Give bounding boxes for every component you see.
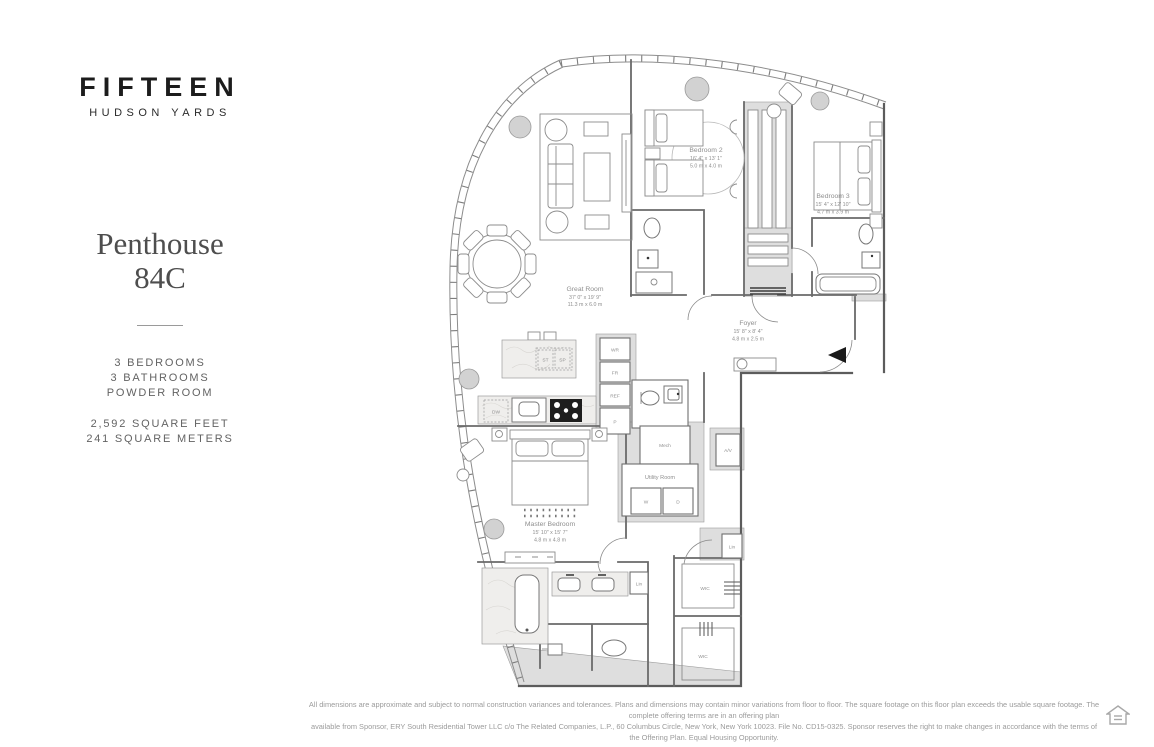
dim-bedroom3-m: 4.7 m x 3.9 m <box>817 210 850 216</box>
label-lin-hall: Lin <box>729 545 736 551</box>
feature-bedrooms: 3 BEDROOMS <box>40 356 280 371</box>
bedroom2-bath <box>636 218 672 293</box>
label-dw: DW <box>492 410 500 416</box>
dim-master-ft: 15' 10" x 15' 7" <box>533 530 568 536</box>
footer-disclaimer: All dimensions are approximate and subje… <box>308 699 1100 743</box>
unit-title-line1: Penthouse <box>40 227 280 261</box>
page: FIFTEEN HUDSON YARDS Penthouse 84C 3 BED… <box>0 0 1154 747</box>
label-wr: WR <box>611 348 620 354</box>
dim-foyer-ft: 15' 8" x 8' 4" <box>733 329 762 335</box>
dim-bedroom3-ft: 15' 4" x 12' 10" <box>816 202 851 208</box>
label-d: D <box>676 500 680 506</box>
brand-logo: FIFTEEN HUDSON YARDS <box>40 72 280 119</box>
label-st: ST <box>542 358 548 364</box>
label-utility: Utility Room <box>645 475 675 481</box>
pantry-column: WR FR REF P <box>600 338 630 434</box>
label-w: W <box>644 500 649 506</box>
sidebar: FIFTEEN HUDSON YARDS Penthouse 84C 3 BED… <box>40 60 280 447</box>
dim-bedroom2-m: 5.0 m x 4.0 m <box>690 164 723 170</box>
entry-arrow <box>828 347 846 363</box>
unit-title-line2: 84C <box>40 261 280 295</box>
master-bath: Lin <box>482 568 648 656</box>
floor-plan: ST SP DW WR FR REF P <box>440 48 900 698</box>
service-rooms: Mech Utility Room W D A/V <box>622 426 740 516</box>
label-wic1: WIC <box>700 586 710 592</box>
area-sqm: 241 SQUARE METERS <box>40 432 280 447</box>
area-list: 2,592 SQUARE FEET 241 SQUARE METERS <box>40 417 280 447</box>
label-great-room: Great Room <box>566 286 603 293</box>
dim-master-m: 4.8 m x 4.8 m <box>534 538 567 544</box>
label-mech: Mech <box>659 443 671 449</box>
label-foyer: Foyer <box>739 320 757 327</box>
label-master-bedroom: Master Bedroom <box>525 521 576 528</box>
unit-title: Penthouse 84C <box>40 227 280 295</box>
bath3-wall <box>852 294 886 301</box>
feature-powder: POWDER ROOM <box>40 386 280 401</box>
label-lin-bath: Lin <box>636 582 643 588</box>
label-ref: REF <box>610 394 620 400</box>
kitchen: ST SP DW <box>478 332 596 424</box>
label-av: A/V <box>724 448 733 454</box>
bedroom3-bath <box>816 224 880 294</box>
feature-bathrooms: 3 BATHROOMS <box>40 371 280 386</box>
disclaimer-line2: available from Sponsor, ERY South Reside… <box>308 721 1100 743</box>
features-list: 3 BEDROOMS 3 BATHROOMS POWDER ROOM <box>40 356 280 401</box>
equal-housing-icon <box>1106 704 1130 731</box>
brand-subtitle: HUDSON YARDS <box>40 107 280 119</box>
area-sqft: 2,592 SQUARE FEET <box>40 417 280 432</box>
dim-great-room-ft: 37' 0" x 19' 9" <box>569 295 601 301</box>
dim-foyer-m: 4.8 m x 2.5 m <box>732 337 765 343</box>
dim-great-room-m: 11.3 m x 6.0 m <box>568 302 603 308</box>
floor-plan-svg: ST SP DW WR FR REF P <box>440 48 900 698</box>
label-fr: FR <box>612 371 619 377</box>
label-bedroom2: Bedroom 2 <box>689 147 722 154</box>
disclaimer-line1: All dimensions are approximate and subje… <box>308 699 1100 721</box>
label-bedroom3: Bedroom 3 <box>816 193 849 200</box>
brand-name: FIFTEEN <box>40 72 280 103</box>
dim-bedroom2-ft: 16' 4" x 13' 1" <box>690 156 722 162</box>
label-sp: SP <box>559 358 565 364</box>
label-wic2: WIC <box>698 654 708 660</box>
label-p: P <box>613 420 616 426</box>
divider <box>137 325 183 326</box>
powder-room <box>632 380 688 428</box>
